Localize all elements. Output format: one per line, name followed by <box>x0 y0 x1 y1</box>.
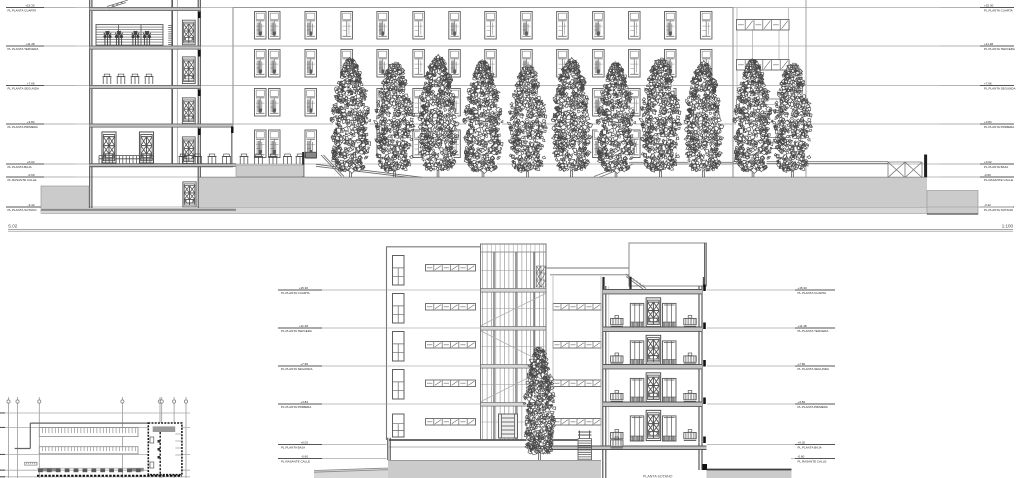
svg-text:PL.RASANTE CALLE: PL.RASANTE CALLE <box>984 178 1013 182</box>
svg-text:PL.PLANTA BAJA: PL.PLANTA BAJA <box>798 445 822 449</box>
svg-text:PL.PLANTA CUARTA: PL.PLANTA CUARTA <box>798 291 827 295</box>
svg-text:-0.60: -0.60 <box>984 173 991 177</box>
svg-text:+7.66: +7.66 <box>300 362 308 366</box>
svg-text:-0.60: -0.60 <box>798 455 805 459</box>
svg-text:PL.PLANTA SOTANO: PL.PLANTA SOTANO <box>984 208 1014 212</box>
svg-text:PLANTA SOTANO: PLANTA SOTANO <box>643 475 673 478</box>
svg-text:PL.PLANTA BAJA: PL.PLANTA BAJA <box>8 165 32 169</box>
svg-text:PL.PLANTA TERCERA: PL.PLANTA TERCERA <box>984 47 1015 51</box>
svg-text:PL.PLANTA PRIMERA: PL.PLANTA PRIMERA <box>281 405 311 409</box>
svg-text:S.02: S.02 <box>8 224 18 229</box>
svg-text:+0.02: +0.02 <box>984 160 992 164</box>
svg-text:PL.PLANTA BAJA: PL.PLANTA BAJA <box>984 165 1008 169</box>
svg-text:+7.66: +7.66 <box>798 362 806 366</box>
svg-text:+11.48: +11.48 <box>25 42 34 46</box>
svg-text:PL.PLANTA PRIMERA: PL.PLANTA PRIMERA <box>984 125 1014 129</box>
svg-text:PL.PLANTA TERCERA: PL.PLANTA TERCERA <box>8 47 39 51</box>
svg-text:-3.42: -3.42 <box>28 203 35 207</box>
svg-text:+11.48: +11.48 <box>798 324 807 328</box>
svg-text:+15.30: +15.30 <box>299 286 309 290</box>
svg-text:+0.02: +0.02 <box>300 441 308 445</box>
svg-text:PL.PLANTA TERCERA: PL.PLANTA TERCERA <box>798 329 829 333</box>
svg-text:PL.PLANTA SEGUNDA: PL.PLANTA SEGUNDA <box>281 367 312 371</box>
svg-text:PL.PLANTA SOTANO: PL.PLANTA SOTANO <box>8 208 38 212</box>
svg-text:+11.48: +11.48 <box>299 324 308 328</box>
svg-text:+3.84: +3.84 <box>798 400 806 404</box>
svg-text:PL.PLANTA CUARTA: PL.PLANTA CUARTA <box>281 291 310 295</box>
svg-text:+11.48: +11.48 <box>984 42 993 46</box>
svg-text:+15.30: +15.30 <box>25 4 35 8</box>
svg-text:PL.PLANTA BAJA: PL.PLANTA BAJA <box>281 445 305 449</box>
svg-text:+15.30: +15.30 <box>984 4 994 8</box>
svg-text:+0.02: +0.02 <box>798 441 806 445</box>
svg-text:PL.PLANTA PRIMERA: PL.PLANTA PRIMERA <box>8 125 38 129</box>
svg-text:PL.PLANTA CUARTA: PL.PLANTA CUARTA <box>8 8 37 12</box>
svg-text:PL.PLANTA SEGUNDA: PL.PLANTA SEGUNDA <box>798 367 829 371</box>
svg-text:-0.60: -0.60 <box>28 173 35 177</box>
svg-text:PL.PLANTA PRIMERA: PL.PLANTA PRIMERA <box>798 405 828 409</box>
svg-text:+3.84: +3.84 <box>984 120 992 124</box>
svg-text:+3.84: +3.84 <box>300 400 308 404</box>
svg-text:PL.RASANTE CALLE: PL.RASANTE CALLE <box>8 178 37 182</box>
svg-text:PL.PLANTA SEGUNDA: PL.PLANTA SEGUNDA <box>984 86 1015 90</box>
svg-text:PL.PLANTA SEGUNDA: PL.PLANTA SEGUNDA <box>8 86 39 90</box>
svg-text:+7.66: +7.66 <box>984 82 992 86</box>
svg-text:PL.PLANTA CUARTA: PL.PLANTA CUARTA <box>984 8 1013 12</box>
svg-text:-3.42: -3.42 <box>984 203 991 207</box>
svg-text:+7.66: +7.66 <box>27 82 35 86</box>
svg-text:PL.RASANTE CALLE: PL.RASANTE CALLE <box>798 459 827 463</box>
svg-text:-0.60: -0.60 <box>301 455 308 459</box>
svg-text:PL.RASANTE CALLE: PL.RASANTE CALLE <box>281 459 310 463</box>
svg-text:+0.02: +0.02 <box>27 160 35 164</box>
svg-text:1:100: 1:100 <box>1002 224 1014 229</box>
svg-text:PL.PLANTA TERCERA: PL.PLANTA TERCERA <box>281 329 312 333</box>
svg-text:+3.84: +3.84 <box>27 120 35 124</box>
svg-text:+15.30: +15.30 <box>798 286 808 290</box>
